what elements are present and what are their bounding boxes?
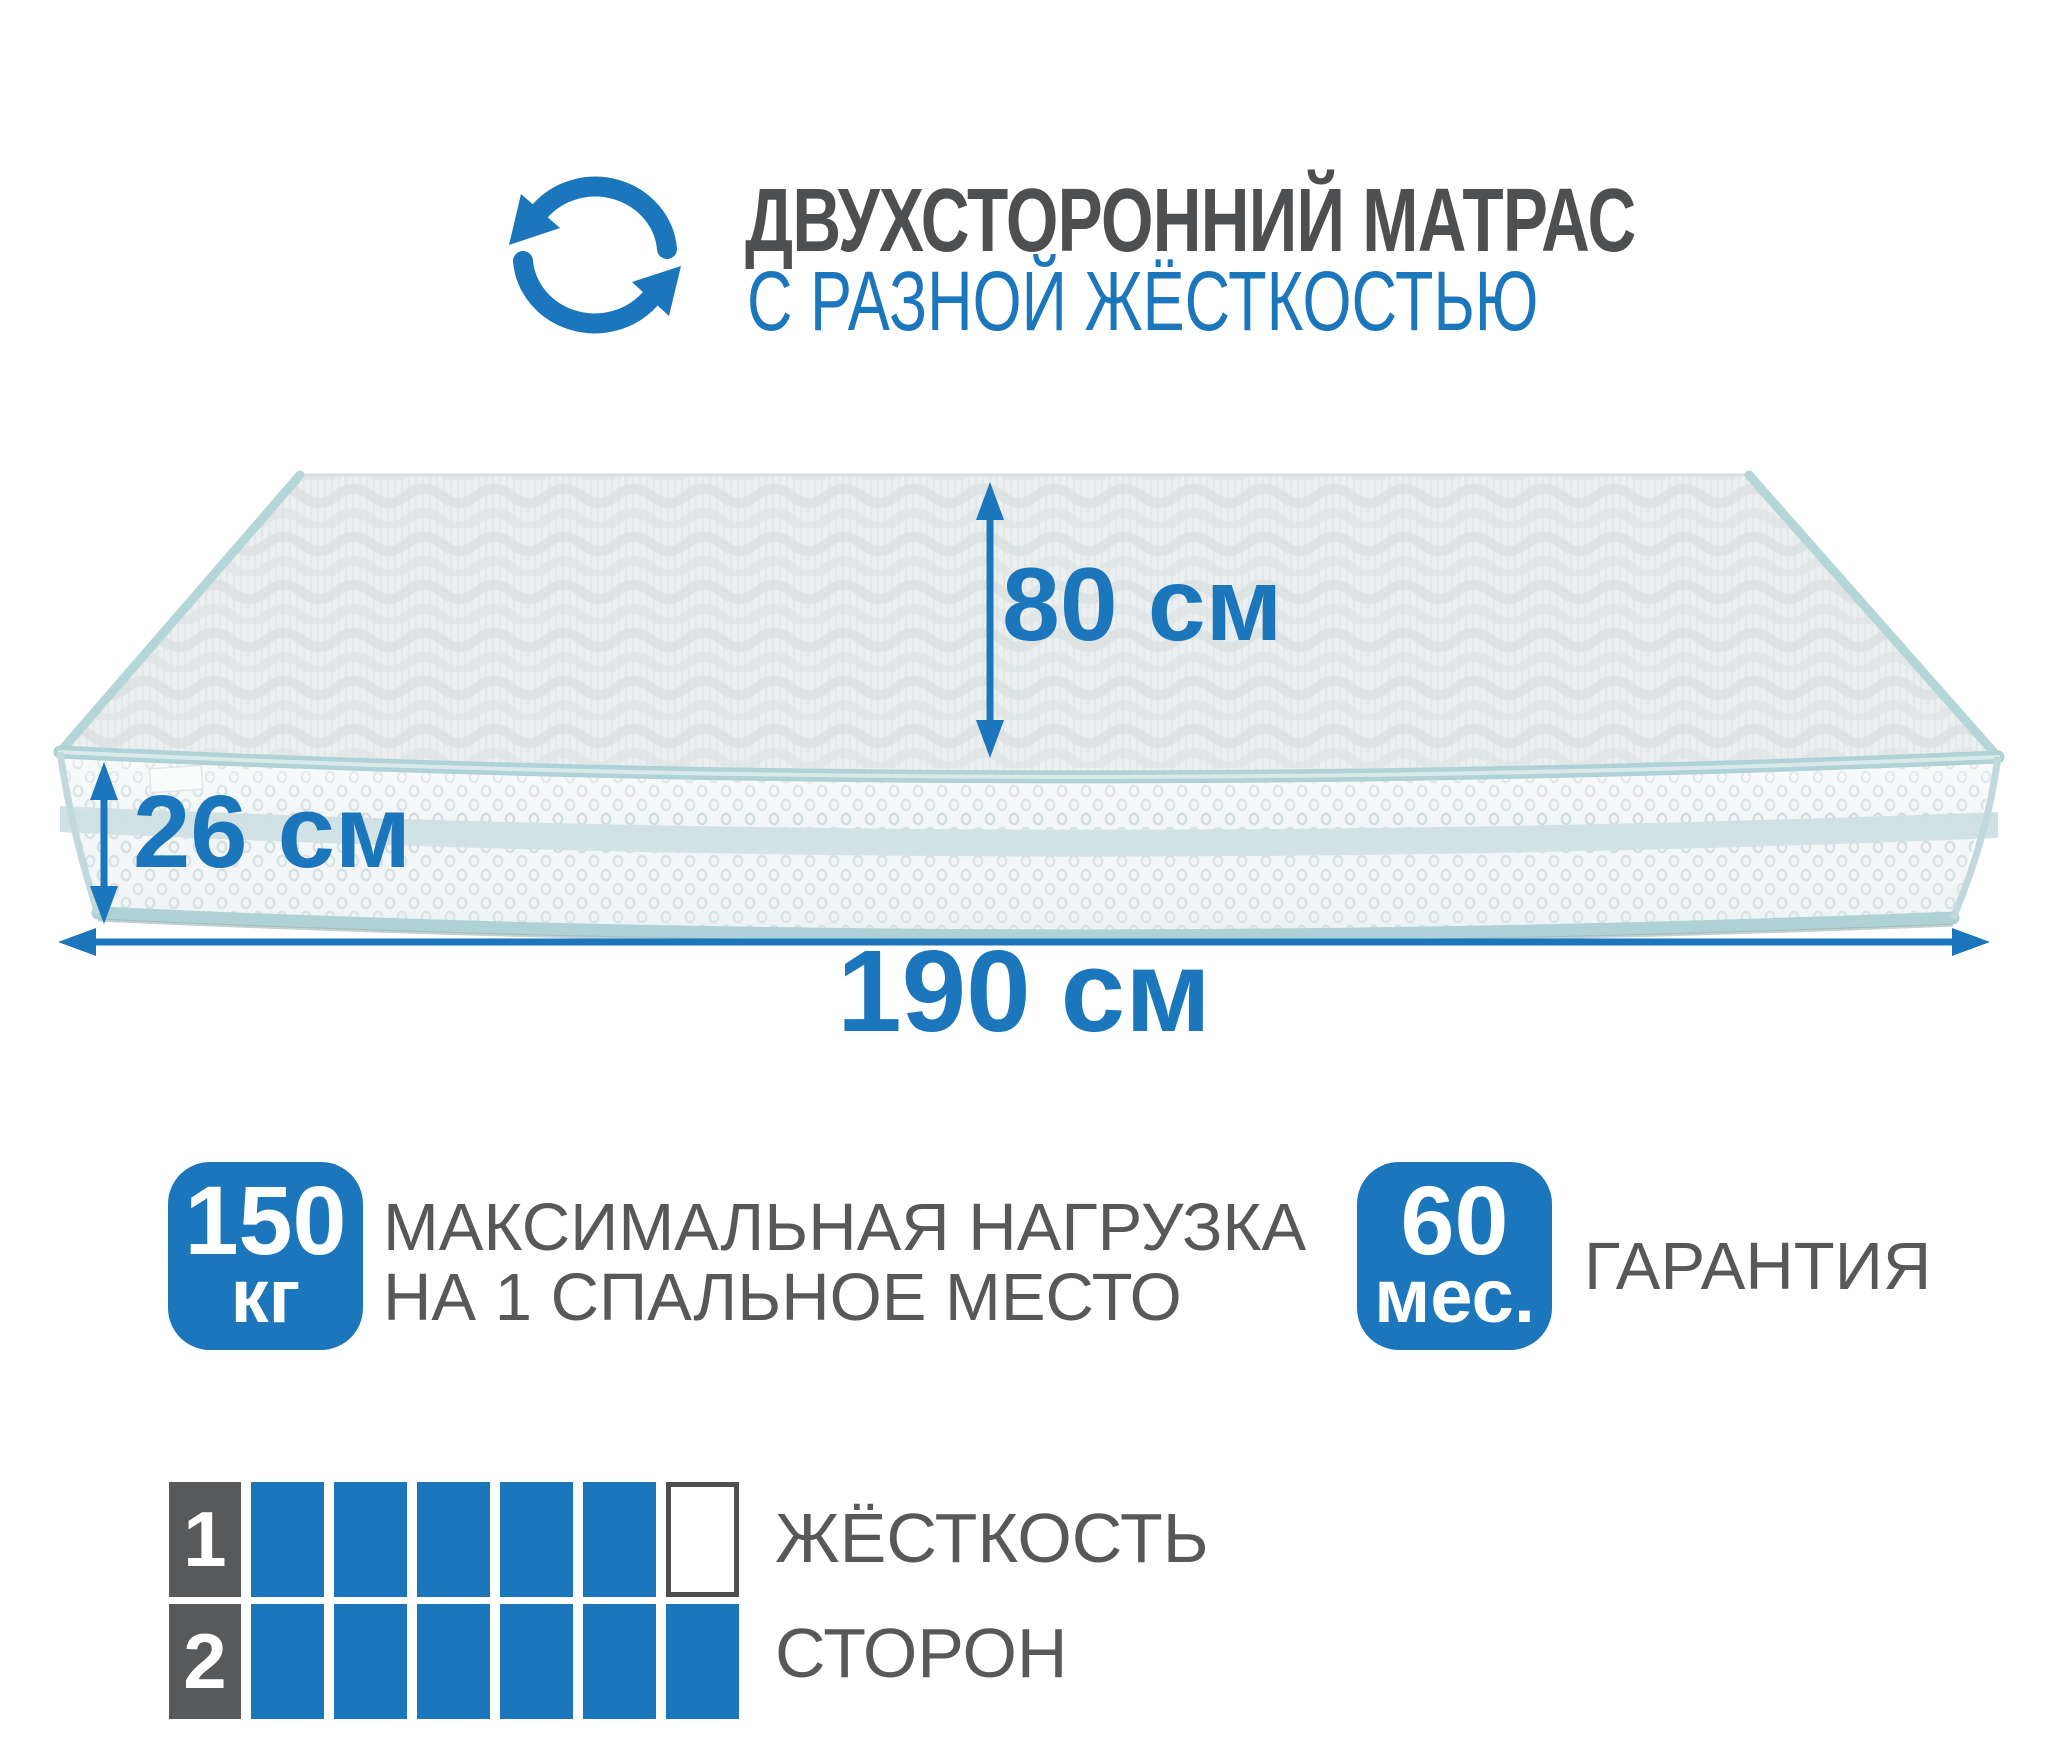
firmness-cell-filled xyxy=(666,1604,739,1719)
firmness-caption-line2: СТОРОН xyxy=(775,1618,1067,1688)
page-subtitle: С РАЗНОЙ ЖЁСТКОСТЬЮ xyxy=(747,259,1538,343)
length-value: 190 xyxy=(837,926,1031,1056)
page-title: ДВУХСТОРОННИЙ МАТРАС xyxy=(745,176,1635,266)
firmness-cell-filled xyxy=(334,1604,407,1719)
firmness-cell-filled xyxy=(583,1482,656,1597)
firmness-cell-filled xyxy=(500,1604,573,1719)
rotate-arrows-icon xyxy=(509,187,681,324)
firmness-cell-filled xyxy=(334,1482,407,1597)
firmness-row: 1 xyxy=(169,1482,739,1597)
max-load-unit: кг xyxy=(168,1259,363,1335)
height-unit: см xyxy=(278,774,411,889)
firmness-caption-line1: ЖЁСТКОСТЬ xyxy=(775,1503,1209,1573)
max-load-caption: МАКСИМАЛЬНАЯ НАГРУЗКА НА 1 СПАЛЬНОЕ МЕСТ… xyxy=(383,1193,1306,1333)
width-dimension-label: 80см xyxy=(1002,553,1282,657)
warranty-badge: 60 мес. xyxy=(1357,1162,1552,1350)
firmness-cell-filled xyxy=(417,1604,490,1719)
firmness-row-label: 2 xyxy=(169,1604,241,1719)
max-load-badge: 150 кг xyxy=(168,1162,363,1350)
warranty-caption: ГАРАНТИЯ xyxy=(1584,1232,1931,1302)
length-dimension-label: 190см xyxy=(0,933,2048,1049)
width-value: 80 xyxy=(1002,547,1118,663)
mattress-infographic: ДВУХСТОРОННИЙ МАТРАС С РАЗНОЙ ЖЁСТКОСТЬЮ… xyxy=(0,0,2048,1757)
firmness-cell-filled xyxy=(251,1482,324,1597)
warranty-unit: мес. xyxy=(1357,1259,1552,1335)
height-dimension-label: 26см xyxy=(133,780,411,883)
firmness-cell-filled xyxy=(251,1604,324,1719)
firmness-row-label: 1 xyxy=(169,1482,241,1597)
max-load-caption-line1: МАКСИМАЛЬНАЯ НАГРУЗКА xyxy=(383,1193,1306,1263)
width-unit: см xyxy=(1148,547,1283,663)
firmness-grid: 12 xyxy=(169,1482,739,1726)
length-unit: см xyxy=(1061,926,1211,1056)
max-load-caption-line2: НА 1 СПАЛЬНОЕ МЕСТО xyxy=(383,1263,1306,1333)
height-value: 26 xyxy=(133,774,248,889)
firmness-cell-filled xyxy=(500,1482,573,1597)
firmness-cell-filled xyxy=(417,1482,490,1597)
firmness-row: 2 xyxy=(169,1604,739,1719)
firmness-cell-empty xyxy=(666,1482,739,1597)
firmness-cell-filled xyxy=(583,1604,656,1719)
